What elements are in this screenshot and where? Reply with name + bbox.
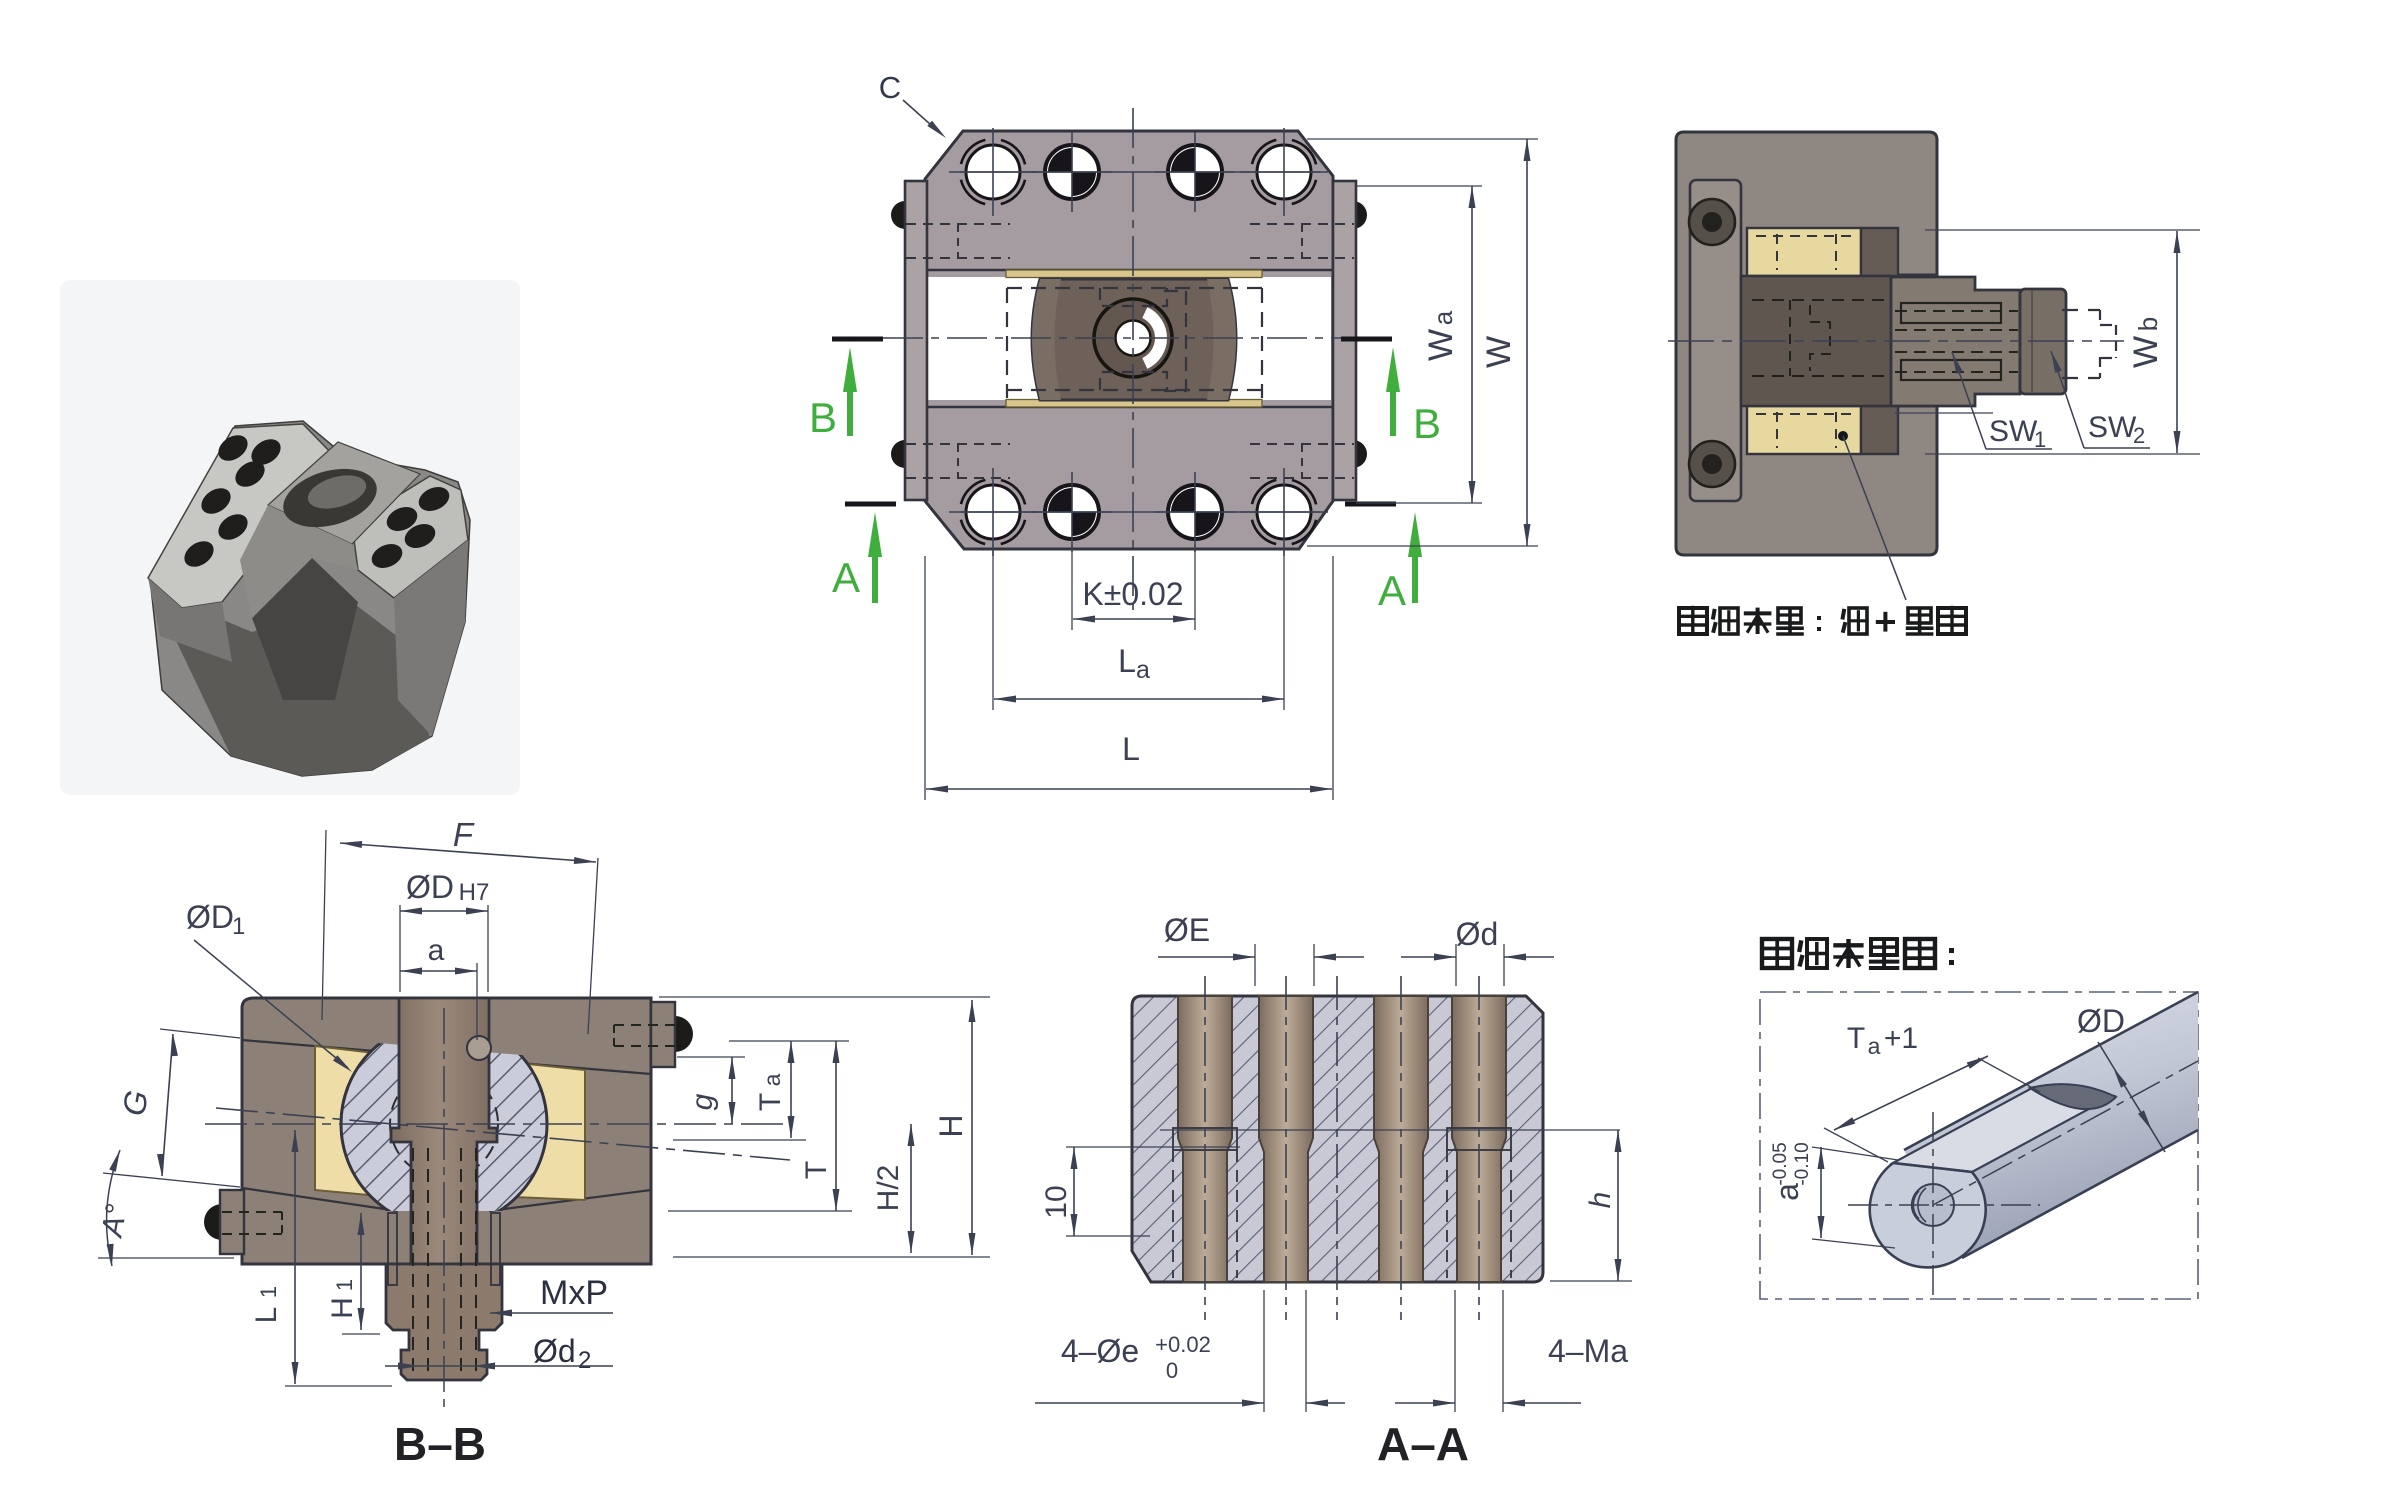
svg-text:A: A <box>1378 567 1406 614</box>
svg-text:1: 1 <box>256 1286 281 1298</box>
svg-text:ØD: ØD <box>186 899 234 935</box>
svg-text:W: W <box>2127 336 2165 368</box>
svg-text:+1: +1 <box>1884 1022 1918 1055</box>
svg-text:a: a <box>1428 310 1458 325</box>
svg-text:A: A <box>832 554 860 601</box>
svg-text:Ød: Ød <box>1456 916 1499 952</box>
svg-text:T: T <box>800 1161 833 1179</box>
svg-text:F: F <box>453 816 475 853</box>
svg-text:B–B: B–B <box>394 1418 486 1470</box>
svg-text:ØD: ØD <box>406 869 454 905</box>
svg-text:H: H <box>326 1297 359 1319</box>
svg-text:L: L <box>1118 643 1136 679</box>
svg-text:1: 1 <box>232 913 245 940</box>
svg-text:a: a <box>1136 656 1150 684</box>
svg-text:h: h <box>1584 1192 1617 1209</box>
svg-text:Ød: Ød <box>533 1333 576 1369</box>
svg-text:a: a <box>1868 1033 1881 1059</box>
svg-text:+0.02: +0.02 <box>1155 1332 1211 1357</box>
svg-text:H/2: H/2 <box>872 1165 905 1212</box>
svg-text:MxP: MxP <box>540 1274 608 1312</box>
svg-text:W: W <box>1480 336 1518 368</box>
svg-text:b: b <box>2133 317 2163 331</box>
svg-text:ØE: ØE <box>1164 912 1210 948</box>
svg-text:K±0.02: K±0.02 <box>1082 576 1183 612</box>
svg-text:-0.05: -0.05 <box>1770 1142 1791 1185</box>
svg-text:2: 2 <box>2133 423 2145 448</box>
svg-text:T: T <box>1847 1022 1865 1055</box>
svg-text:L: L <box>1122 731 1140 767</box>
svg-text:4–Øe: 4–Øe <box>1061 1333 1139 1369</box>
svg-text:B: B <box>1413 400 1441 447</box>
svg-text:H7: H7 <box>459 879 490 906</box>
svg-text:-0.10: -0.10 <box>1792 1142 1813 1185</box>
svg-text:4–Ma: 4–Ma <box>1548 1333 1628 1369</box>
svg-text:L: L <box>250 1307 283 1324</box>
svg-text:SW: SW <box>1989 415 2038 448</box>
svg-text:SW: SW <box>2088 411 2137 444</box>
svg-text:B: B <box>809 394 837 441</box>
svg-text:1: 1 <box>2034 427 2046 452</box>
svg-text:2: 2 <box>578 1347 591 1374</box>
svg-text:W: W <box>1422 329 1460 361</box>
svg-text:g: g <box>686 1093 719 1110</box>
svg-text:A–A: A–A <box>1377 1418 1469 1470</box>
svg-text:T: T <box>754 1093 787 1111</box>
svg-text:A°: A° <box>95 1202 133 1241</box>
svg-text:10: 10 <box>1040 1185 1073 1218</box>
svg-text:ØD: ØD <box>2077 1003 2125 1039</box>
svg-text:a: a <box>428 934 445 967</box>
svg-text:C: C <box>879 70 901 105</box>
svg-text:0: 0 <box>1166 1358 1178 1383</box>
svg-text:a: a <box>759 1073 785 1086</box>
svg-text:H: H <box>933 1114 969 1137</box>
svg-text:1: 1 <box>332 1279 357 1291</box>
